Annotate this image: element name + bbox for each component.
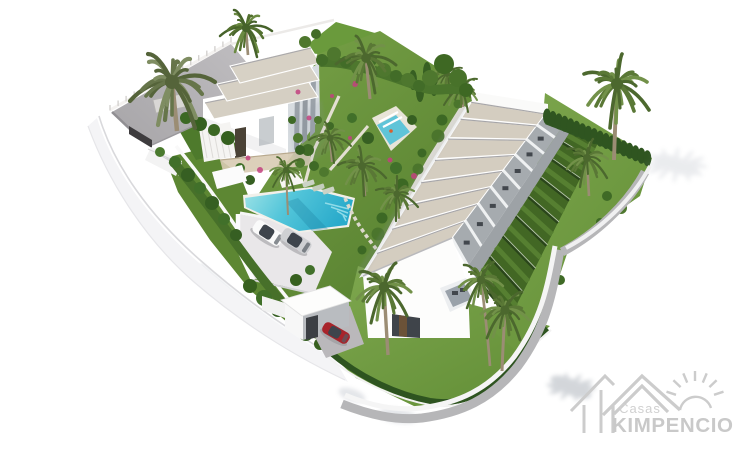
svg-text:KIMPENCIO: KIMPENCIO: [612, 414, 734, 437]
